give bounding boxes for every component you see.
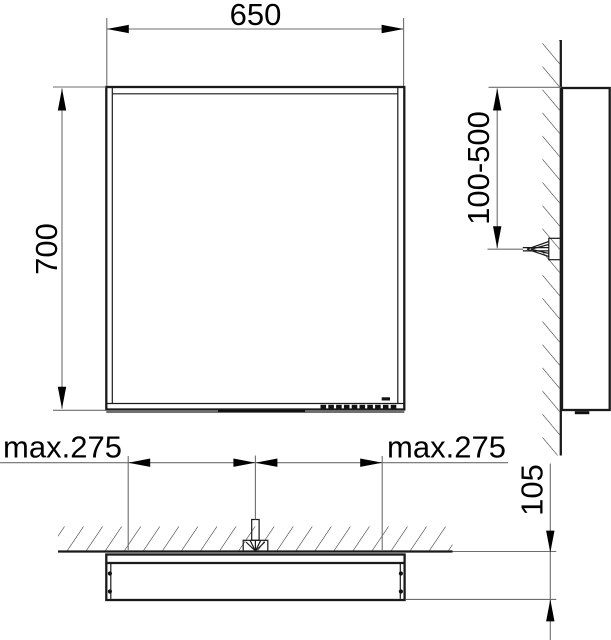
dimension-700: 700 (29, 87, 106, 410)
technical-drawing-page: 650 700 (0, 0, 611, 640)
front-view-cabinet (106, 87, 404, 412)
side-view-cabinet (562, 88, 610, 414)
dim-label-max275-left: max.275 (3, 430, 122, 465)
dim-label-max275-right: max.275 (387, 430, 506, 465)
logo-mark-side (575, 411, 590, 414)
dim-label-105: 105 (515, 464, 550, 516)
door-bottom-edge (218, 410, 305, 413)
control-segment-row (321, 405, 397, 409)
dim-label-100-500: 100-500 (461, 111, 496, 225)
side-view: 100-500 (461, 40, 610, 456)
front-view: 650 700 (29, 0, 404, 412)
plan-view-cabinet (106, 555, 404, 601)
plan-view: max.275 max.275 105 (0, 430, 556, 640)
dimension-650: 650 (107, 0, 404, 86)
technical-drawing: 650 700 (0, 0, 611, 640)
logo-mark-front (382, 397, 390, 400)
dim-label-700: 700 (29, 223, 64, 275)
dim-label-650: 650 (230, 0, 282, 32)
